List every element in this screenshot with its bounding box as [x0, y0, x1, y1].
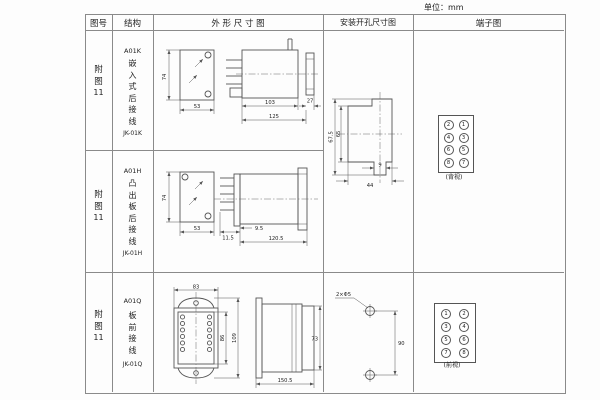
- dim-cutout-width: 44: [367, 183, 374, 189]
- terminal-pin: 5: [459, 145, 469, 155]
- dim-inner-height: 86: [220, 335, 226, 342]
- header-fig-no: 图号: [85, 17, 112, 29]
- structure-cell-row3: A01Q 板前接线 JK-01Q: [112, 297, 153, 368]
- hole-count-label: 2×Φ5: [336, 292, 351, 298]
- terminal-pin: 1: [441, 309, 451, 319]
- terminal-pin: 5: [441, 335, 451, 345]
- outline-drawing-a01k: 74 53 103 27 125: [156, 36, 322, 150]
- fig-cell-row2: 附图 11: [85, 189, 112, 222]
- terminal-diagram-rear: 2 1 4 3 6 5 8 7: [438, 115, 474, 173]
- fig-cell-row3: 附图 11: [85, 309, 112, 342]
- terminal-pin: 8: [444, 158, 454, 168]
- mounting-holes-drawing: 2×Φ5 90: [332, 288, 410, 388]
- table-row1-line: [85, 150, 323, 151]
- header-terminal: 端子图: [413, 17, 564, 29]
- terminal-pin: 2: [444, 120, 454, 130]
- dim-cutout-inner-height: 65: [336, 131, 342, 138]
- dim-top-width: 83: [193, 285, 200, 291]
- terminal-pin: 4: [444, 133, 454, 143]
- header-mounting: 安装开孔尺寸图: [323, 17, 413, 28]
- header-outline: 外 形 尺 寸 图: [153, 17, 323, 29]
- terminal-view-label-rear: (背视): [434, 172, 474, 181]
- terminal-pin: 7: [459, 158, 469, 168]
- dim-cutout-outer-height: 67.5: [329, 131, 335, 143]
- manual-page: 单位：mm 图号 结构 外 形 尺 寸 图 安装开孔尺寸图 端子图 附图 11 …: [0, 0, 600, 400]
- terminal-pin: 4: [459, 322, 469, 332]
- header-structure: 结构: [112, 17, 153, 29]
- structure-cell-row2: A01H 凸出板后接线 JK-01H: [112, 167, 153, 257]
- fig-cell-row1: 附图 11: [85, 64, 112, 97]
- terminal-pin: 2: [459, 309, 469, 319]
- dim-depth: 150.5: [278, 378, 293, 384]
- outline-drawing-a01q: 83 86 109 73 150.5: [148, 282, 324, 390]
- terminal-pin: 1: [459, 120, 469, 130]
- dim-tab-length: 27: [307, 99, 314, 105]
- dim-front-width: 53: [194, 104, 201, 110]
- dim-front-height: 74: [162, 73, 168, 80]
- dim-outer-height: 109: [232, 333, 238, 343]
- dim-front-height: 74: [162, 194, 168, 201]
- terminal-pin: 7: [441, 348, 451, 358]
- outline-drawing-a01h: 74 53 9.5 11.5 120.5: [156, 162, 322, 270]
- table-row2-line: [85, 272, 564, 273]
- dim-pin-length: 11.5: [222, 236, 234, 242]
- terminal-pin: 6: [459, 335, 469, 345]
- unit-note: 单位：mm: [424, 2, 464, 13]
- terminal-pin: 8: [459, 348, 469, 358]
- table-header-line: [85, 30, 564, 31]
- dim-hole-spacing: 90: [398, 341, 405, 347]
- terminal-diagram-front: 1 2 3 4 5 6 7 8: [434, 303, 476, 363]
- dim-notch-width: 9: [378, 163, 381, 169]
- dim-body-length: 120.5: [269, 236, 284, 242]
- dim-front-width: 53: [194, 226, 201, 232]
- structure-cell-row1: A01K 嵌入式后接线 JK-01K: [112, 47, 153, 137]
- dim-total-length: 125: [269, 114, 279, 120]
- dim-body-length: 103: [265, 100, 275, 106]
- dim-offset: 9.5: [255, 226, 263, 232]
- terminal-pin: 6: [444, 145, 454, 155]
- terminal-pin: 3: [441, 322, 451, 332]
- table-vline-4: [413, 14, 414, 392]
- terminal-pin: 3: [459, 133, 469, 143]
- terminal-view-label-front: (前视): [432, 360, 472, 369]
- mounting-cutout-drawing: 67.5 65 9 44: [328, 88, 410, 206]
- dim-side-height: 73: [311, 337, 318, 343]
